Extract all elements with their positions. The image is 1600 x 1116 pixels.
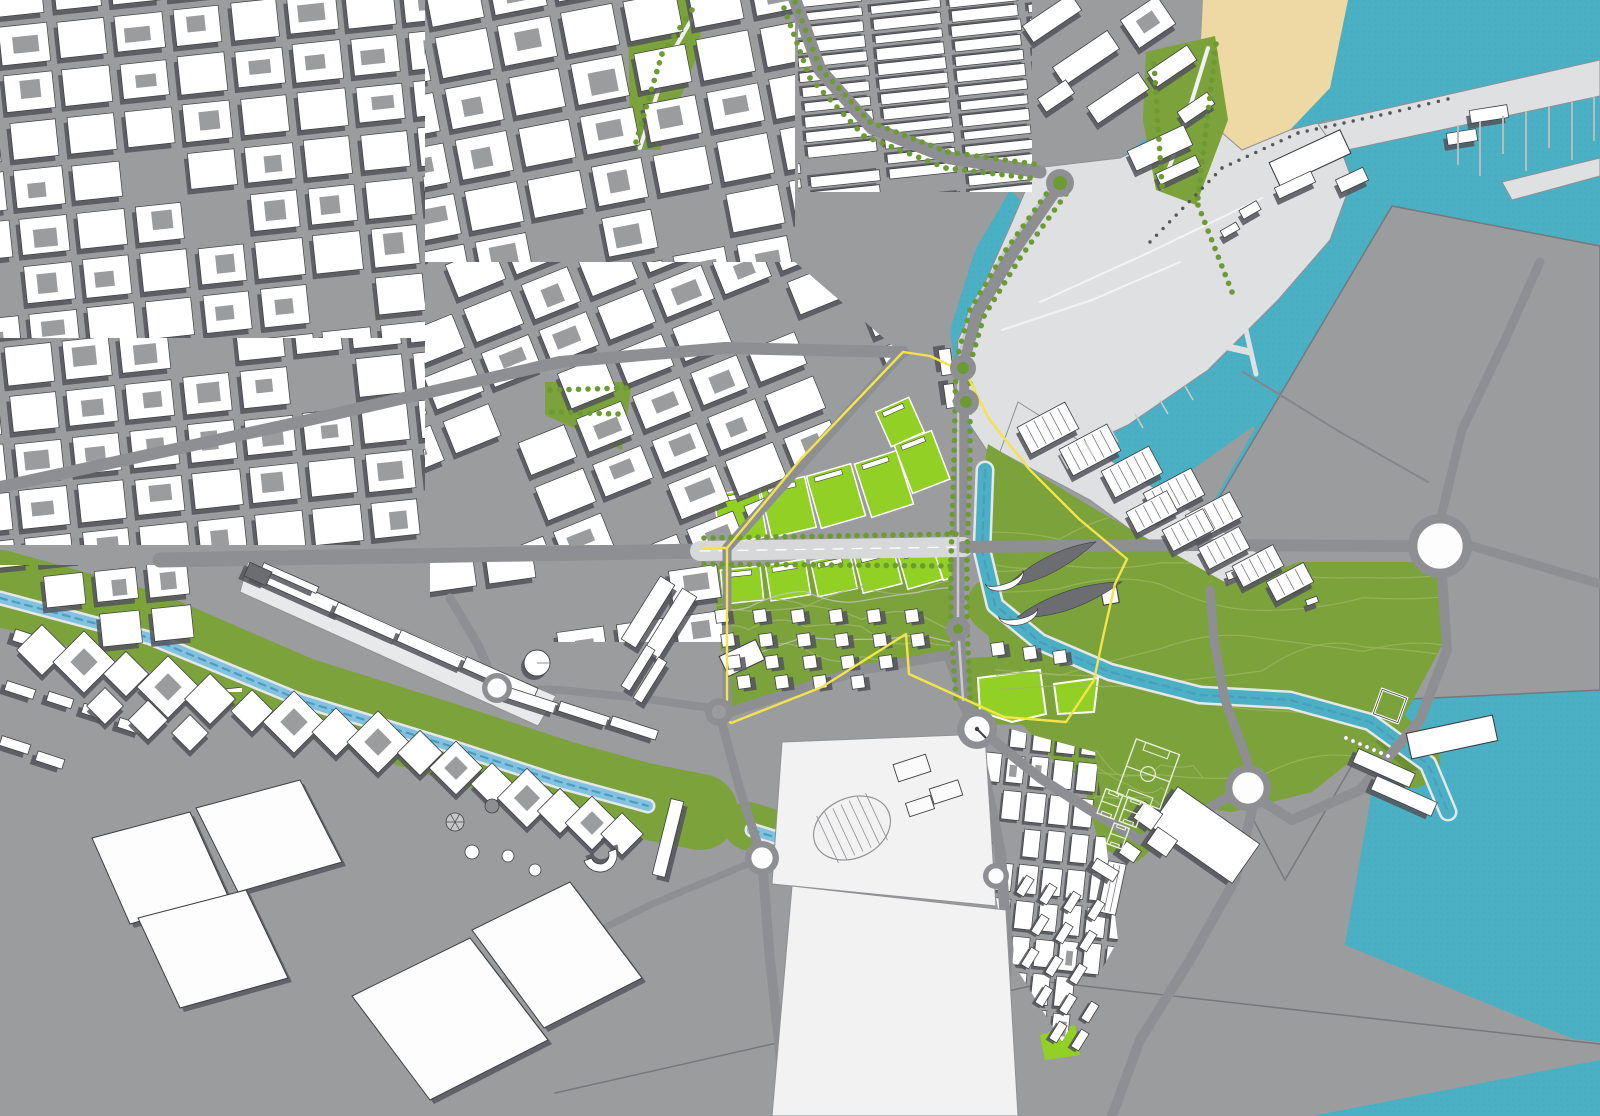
tree-dot [948, 548, 954, 554]
tree-dot [764, 534, 770, 540]
tree-dot [821, 90, 827, 96]
tree-dot [809, 533, 815, 539]
tree-dot [920, 563, 926, 569]
tree-dot [964, 585, 970, 591]
tree-dot [976, 332, 982, 338]
tree-dot [1203, 132, 1209, 138]
tree-dot [1009, 173, 1015, 179]
tree-dot [803, 27, 809, 33]
tree-dot [965, 641, 971, 647]
tree-dot [804, 66, 810, 72]
tree-dot [948, 585, 954, 591]
tree-dot [881, 532, 887, 538]
building [68, 161, 123, 206]
tree-dot [951, 475, 957, 481]
tree-dot [823, 72, 829, 78]
building [73, 209, 129, 255]
bollard-dot [1342, 121, 1345, 124]
tree-dot [820, 562, 826, 568]
tree-dot [966, 677, 972, 683]
tree-dot [981, 170, 987, 176]
tree-dot [1040, 223, 1046, 229]
courtyard [461, 96, 483, 117]
building [245, 463, 302, 509]
courtyard [377, 461, 404, 481]
tree-dot [950, 484, 956, 490]
building [15, 214, 71, 260]
tree-dot [549, 409, 555, 415]
tree-dot [926, 532, 932, 538]
bollard-dot [1155, 234, 1158, 237]
tree-dot [1023, 247, 1029, 253]
courtyard [321, 424, 339, 439]
courtyard [371, 95, 394, 110]
tree-dot [836, 85, 842, 91]
tree-dot [746, 534, 752, 540]
tree-dot [1003, 157, 1009, 163]
tree-dot [829, 562, 835, 568]
tree-dot [841, 111, 847, 117]
tree-dot [794, 40, 800, 46]
tree-dot [614, 385, 620, 391]
building [116, 60, 170, 105]
tree-dot [893, 129, 899, 135]
tree-dot [948, 576, 954, 582]
mooring-dot [1365, 745, 1369, 749]
tree-dot [902, 133, 908, 139]
building [231, 47, 286, 93]
courtyard [31, 500, 55, 516]
tree-dot [1002, 280, 1008, 286]
tree-dot [964, 567, 970, 573]
tree-dot [898, 147, 904, 153]
tree-dot [1202, 141, 1208, 147]
building [0, 71, 56, 118]
tree-dot [955, 151, 961, 157]
tree-dot [902, 563, 908, 569]
bollard-dot [1229, 162, 1232, 165]
tree-dot [885, 126, 891, 132]
building [15, 486, 71, 535]
tree-dot [967, 307, 973, 313]
tree-dot [993, 156, 999, 162]
building [147, 605, 194, 647]
tree-dot [945, 149, 951, 155]
tree-dot [701, 561, 707, 567]
tree-dot [1043, 191, 1049, 197]
tree-dot [966, 494, 972, 500]
tree-dot [756, 562, 762, 568]
mooring-dot [1379, 751, 1383, 755]
tree-dot [1157, 155, 1163, 161]
tree-dot [1212, 246, 1218, 252]
tree-dot [1205, 114, 1211, 120]
bollard-dot [1417, 104, 1420, 107]
tree-dot [965, 650, 971, 656]
tree-dot [654, 69, 660, 75]
tree-dot [1057, 199, 1063, 205]
bollard-dot [1237, 159, 1240, 162]
road [160, 551, 700, 560]
courtyard [124, 26, 151, 43]
courtyard [81, 398, 104, 416]
tree-dot [870, 137, 876, 143]
tree-dot [1212, 50, 1218, 56]
courtyard [274, 298, 294, 315]
tree-dot [641, 113, 647, 119]
tree-dot [657, 60, 663, 66]
tree-dot [967, 448, 973, 454]
building [0, 22, 51, 71]
building [121, 107, 176, 153]
tree-dot [974, 153, 980, 159]
tree-dot [1211, 59, 1217, 65]
roundabout [1046, 169, 1074, 197]
tree-dot [1038, 199, 1044, 205]
tree-dot [950, 494, 956, 500]
tree-dot [827, 533, 833, 539]
tree-dot [1031, 161, 1037, 167]
bollard-dot [1168, 220, 1171, 223]
courtyard [36, 272, 58, 294]
tree-dot [842, 92, 848, 98]
building [347, 35, 401, 82]
tree-dot [800, 534, 806, 540]
tree-dot [983, 155, 989, 161]
tree-dot [967, 428, 973, 434]
tree-dot [1197, 177, 1203, 183]
tree-dot [917, 532, 923, 538]
tree-dot [952, 428, 958, 434]
building [304, 184, 358, 230]
tree-dot [587, 410, 593, 416]
tree-dot [977, 290, 983, 296]
building [371, 273, 426, 320]
building [183, 149, 238, 195]
tree-dot [962, 328, 968, 334]
tree-circle [465, 845, 479, 859]
tree-dot [729, 561, 735, 567]
tree-dot [1207, 96, 1213, 102]
tree-dot [964, 595, 970, 601]
bollard-dot [1271, 143, 1274, 146]
tree-dot [998, 256, 1004, 262]
tree-dot [807, 75, 813, 81]
tree-dot [1152, 71, 1158, 77]
tree-dot [983, 281, 989, 287]
tree-dot [701, 535, 707, 541]
tree-dot [595, 386, 601, 392]
tree-dot [966, 503, 972, 509]
tree-dot [738, 561, 744, 567]
bollard-dot [1379, 113, 1382, 116]
courtyard [143, 391, 163, 408]
bollard-dot [1408, 107, 1411, 110]
tree-dot [1012, 263, 1018, 269]
building [367, 225, 421, 274]
city-harbor-masterplan-map [0, 0, 1600, 1116]
courtyard [27, 182, 46, 198]
tree-dot [651, 78, 657, 84]
tree-dot [1219, 263, 1225, 269]
roundabout [1225, 765, 1271, 811]
tree-dot [838, 562, 844, 568]
tree-dot [967, 419, 973, 425]
courtyard [198, 110, 220, 130]
building [352, 83, 406, 128]
bollard-dot [1296, 131, 1299, 134]
tree-dot [1052, 207, 1058, 213]
courtyard [33, 227, 58, 247]
bollard-dot [1279, 139, 1282, 142]
building [63, 113, 118, 160]
roundabout [705, 698, 733, 726]
tree-dot [689, 7, 695, 13]
tree-dot [1026, 215, 1032, 221]
tree-dot [978, 323, 984, 329]
building [237, 95, 290, 141]
courtyard [383, 232, 405, 255]
bollard-dot [1370, 115, 1373, 118]
tree-dot [951, 659, 957, 665]
tree-dot [964, 614, 970, 620]
tree-dot [967, 686, 973, 692]
tree-dot [952, 418, 958, 424]
tree-dot [944, 531, 950, 537]
tree-dot [855, 106, 861, 112]
building [288, 40, 344, 89]
bollard-dot [1188, 200, 1191, 203]
tree-dot [1209, 77, 1215, 83]
building [1043, 830, 1066, 865]
building [361, 450, 416, 498]
tree-dot [953, 531, 959, 537]
tree-dot [1007, 272, 1013, 278]
roundabout [983, 863, 1009, 889]
tree-dot [953, 166, 959, 172]
tree-dot [633, 139, 639, 145]
tree-dot [889, 144, 895, 150]
bollard-dot [1181, 207, 1184, 210]
tree-dot [847, 562, 853, 568]
tree-dot [1202, 220, 1208, 226]
tree-dot [863, 533, 869, 539]
tree-dot [956, 349, 962, 355]
tree-dot [991, 297, 997, 303]
south-field [772, 886, 1018, 1116]
tree-dot [1158, 164, 1164, 170]
building [1073, 762, 1098, 796]
tree-dot [993, 264, 999, 270]
tree-dot [811, 562, 817, 568]
tree-circle [502, 850, 514, 862]
building [251, 238, 307, 285]
tree-dot [966, 512, 972, 518]
roundabout [950, 355, 976, 381]
tree-dot [1156, 136, 1162, 142]
tree-dot [948, 595, 954, 601]
roundabout [745, 841, 779, 875]
tree-dot [818, 533, 824, 539]
bollard-dot [1254, 151, 1257, 154]
building [136, 249, 191, 298]
building [199, 291, 253, 339]
tree-dot [765, 562, 771, 568]
tree-dot [951, 447, 957, 453]
building [73, 480, 127, 528]
tree-dot [659, 51, 665, 57]
tree-dot [1153, 89, 1159, 95]
tree-dot [604, 386, 610, 392]
tree-dot [848, 99, 854, 105]
building [283, 0, 340, 39]
tree-dot [964, 318, 970, 324]
masterplan-viewport [0, 0, 1600, 1116]
tree-dot [646, 95, 652, 101]
tree-dot [916, 155, 922, 161]
courtyard [264, 155, 283, 173]
tree-dot [986, 305, 992, 311]
roundabout [1408, 514, 1472, 578]
courtyard [72, 345, 98, 367]
tree-dot [925, 158, 931, 164]
tree-dot [623, 385, 629, 391]
tree-dot [1154, 99, 1160, 105]
tree-dot [966, 484, 972, 490]
bollard-dot [1333, 123, 1336, 126]
tree-dot [638, 122, 644, 128]
bollard-dot [1194, 193, 1197, 196]
courtyard [215, 305, 235, 321]
tree-dot [865, 563, 871, 569]
tree-dot [867, 119, 873, 125]
courtyard [133, 343, 158, 365]
tree-dot [1199, 211, 1205, 217]
bollard-dot [1324, 125, 1327, 128]
tree-dot [951, 668, 957, 674]
tree-dot [929, 563, 935, 569]
tree-dot [1213, 41, 1219, 47]
tree-dot [950, 503, 956, 509]
tree-dot [899, 532, 905, 538]
tree-dot [950, 512, 956, 518]
tree-dot [755, 534, 761, 540]
building [179, 373, 233, 421]
building [6, 392, 60, 438]
courtyard [691, 620, 711, 639]
tree-dot [964, 548, 970, 554]
tree-dot [1208, 86, 1214, 92]
tree-dot [876, 123, 882, 129]
building [308, 504, 365, 551]
courtyard [19, 79, 41, 99]
courtyard [319, 195, 340, 215]
tree-dot [810, 46, 816, 52]
tree-dot [1206, 105, 1212, 111]
tree-dot [1199, 159, 1205, 165]
tree-dot [928, 143, 934, 149]
tree-dot [943, 165, 949, 171]
tree-dot [1204, 123, 1210, 129]
tree-dot [806, 37, 812, 43]
tree-dot [576, 386, 582, 392]
building [1020, 829, 1041, 861]
tree-dot [566, 387, 572, 393]
tree-dot [879, 140, 885, 146]
tree-dot [1209, 237, 1215, 243]
tree-dot [1003, 247, 1009, 253]
tree-dot [774, 562, 780, 568]
tree-dot [1029, 239, 1035, 245]
tree-dot [577, 410, 583, 416]
courtyard [389, 510, 408, 530]
tree-dot [814, 56, 820, 62]
courtyard [111, 579, 127, 596]
building [188, 469, 244, 515]
building [53, 17, 108, 63]
building [121, 380, 175, 426]
tree-dot [972, 299, 978, 305]
tree-dot [890, 532, 896, 538]
tree-dot [1210, 68, 1216, 74]
tree-dot [559, 409, 565, 415]
roundabout [482, 673, 512, 703]
building [90, 567, 139, 607]
lime-block [811, 553, 858, 597]
tree-dot [1154, 108, 1160, 114]
building [194, 244, 247, 290]
tree-dot [962, 167, 968, 173]
tree-dot [788, 23, 794, 29]
tree-dot [964, 604, 970, 610]
tree-dot [964, 557, 970, 563]
tree-dot [665, 42, 671, 48]
tree-dot [784, 14, 790, 20]
courtyard [215, 254, 235, 274]
tree-dot [1009, 239, 1015, 245]
building [40, 572, 87, 613]
tree-dot [967, 475, 973, 481]
courtyard [41, 319, 66, 336]
bollard-dot [1446, 97, 1449, 100]
bollard-dot [1207, 180, 1210, 183]
tree-dot [981, 313, 987, 319]
tree-dot [796, 9, 802, 15]
building [357, 131, 411, 177]
building [131, 202, 185, 248]
building [115, 331, 172, 379]
bollard-dot [1352, 119, 1355, 122]
roundabout [953, 389, 979, 415]
tree-dot [990, 171, 996, 177]
tree-dot [911, 563, 917, 569]
building [299, 136, 353, 184]
courtyard [135, 73, 157, 88]
building [236, 367, 291, 414]
bollard-dot [1220, 166, 1223, 169]
building [227, 0, 280, 46]
tree-dot [874, 563, 880, 569]
tree-dot [966, 659, 972, 665]
tree-dot [557, 387, 563, 393]
tree-dot [1022, 160, 1028, 166]
tree-dot [951, 466, 957, 472]
bollard-dot [1161, 227, 1164, 230]
tree-dot [908, 532, 914, 538]
mooring-dot [1351, 739, 1355, 743]
tree-dot [1046, 215, 1052, 221]
tree-dot [719, 535, 725, 541]
